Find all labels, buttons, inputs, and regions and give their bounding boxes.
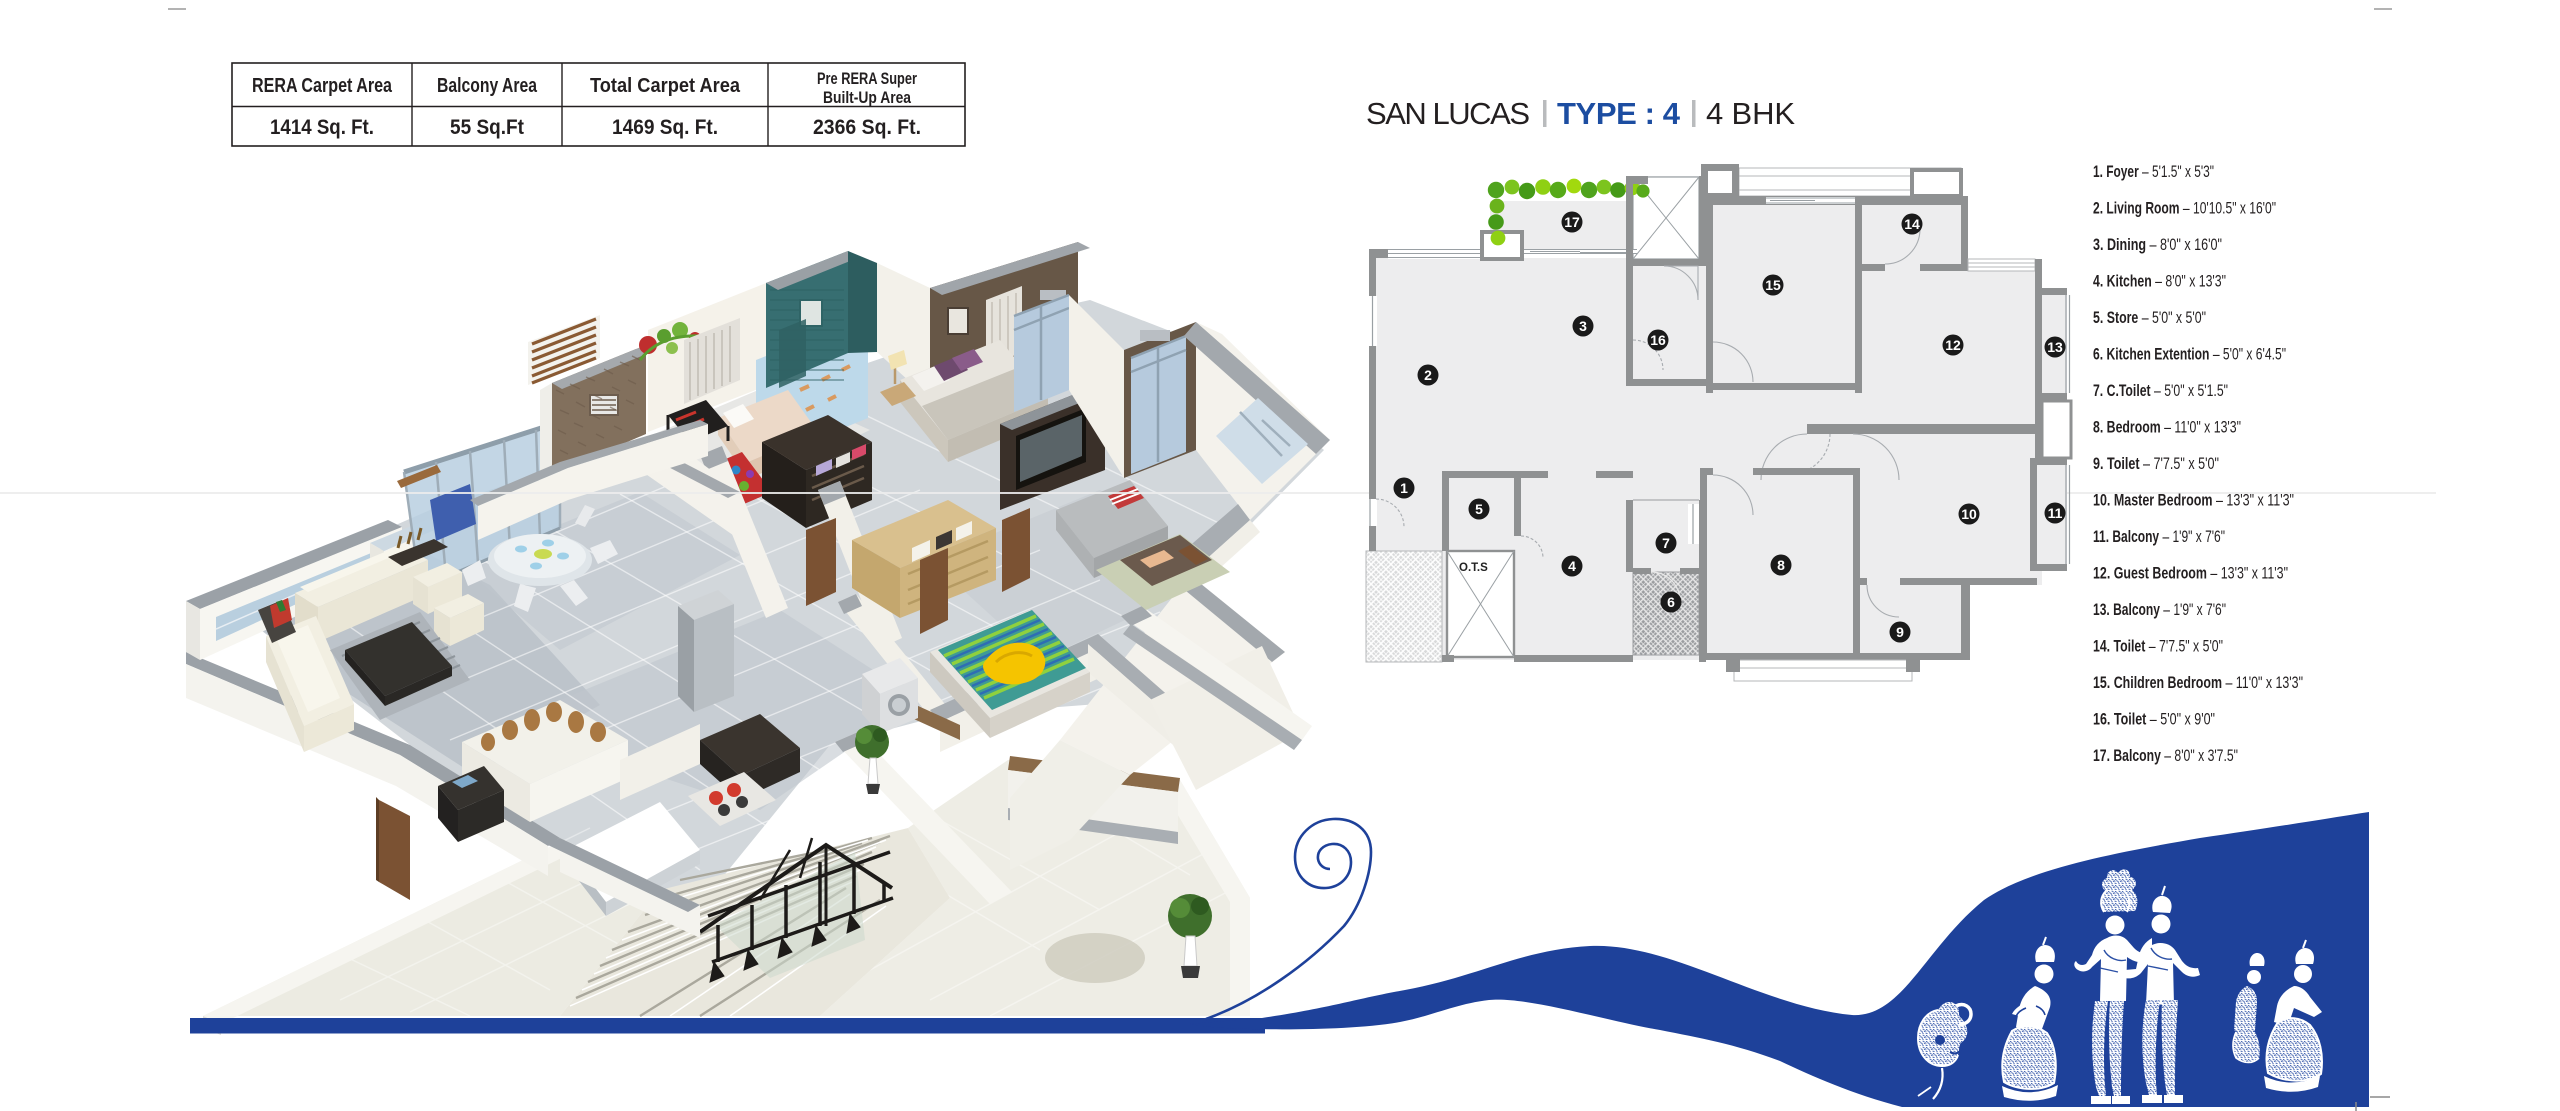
svg-text:16. Toilet – 5'0" x 9'0": 16. Toilet – 5'0" x 9'0": [2093, 711, 2215, 729]
svg-text:4: 4: [1568, 558, 1576, 574]
svg-text:7: 7: [1662, 535, 1670, 551]
svg-text:2366 Sq. Ft.: 2366 Sq. Ft.: [813, 116, 921, 139]
svg-text:1414 Sq. Ft.: 1414 Sq. Ft.: [270, 116, 374, 139]
svg-text:17: 17: [1564, 214, 1580, 230]
svg-text:3. Dining – 8'0" x 16'0": 3. Dining – 8'0" x 16'0": [2093, 236, 2222, 254]
svg-text:1. Foyer – 5'1.5" x 5'3": 1. Foyer – 5'1.5" x 5'3": [2093, 163, 2214, 181]
svg-text:Built-Up Area: Built-Up Area: [823, 89, 912, 107]
svg-text:4 BHK: 4 BHK: [1706, 96, 1795, 131]
svg-text:17. Balcony – 8'0" x 3'7.5": 17. Balcony – 8'0" x 3'7.5": [2093, 747, 2238, 765]
svg-text:16: 16: [1650, 332, 1666, 348]
svg-text:3: 3: [1579, 318, 1587, 334]
svg-text:12. Guest Bedroom – 13'3" x 11: 12. Guest Bedroom – 13'3" x 11'3": [2093, 565, 2288, 583]
svg-text:Total Carpet Area: Total Carpet Area: [590, 75, 741, 97]
svg-text:14. Toilet – 7'7.5" x 5'0": 14. Toilet – 7'7.5" x 5'0": [2093, 638, 2223, 656]
svg-text:6: 6: [1667, 594, 1675, 610]
svg-text:O.T.S: O.T.S: [1459, 562, 1488, 574]
svg-text:10. Master Bedroom – 13'3" x 1: 10. Master Bedroom – 13'3" x 11'3": [2093, 492, 2294, 510]
svg-text:55 Sq.Ft: 55 Sq.Ft: [450, 116, 524, 139]
svg-text:11. Balcony – 1'9" x 7'6": 11. Balcony – 1'9" x 7'6": [2093, 528, 2225, 546]
svg-text:4. Kitchen – 8'0" x 13'3": 4. Kitchen – 8'0" x 13'3": [2093, 273, 2226, 291]
svg-text:5. Store – 5'0" x 5'0": 5. Store – 5'0" x 5'0": [2093, 309, 2206, 327]
svg-text:9: 9: [1896, 624, 1904, 640]
svg-text:TYPE : 4: TYPE : 4: [1557, 96, 1681, 131]
svg-text:RERA Carpet Area: RERA Carpet Area: [252, 75, 393, 97]
svg-text:5: 5: [1475, 501, 1483, 517]
svg-text:15: 15: [1765, 277, 1781, 293]
svg-text:10: 10: [1961, 506, 1977, 522]
svg-text:2. Living Room – 10'10.5" x 16: 2. Living Room – 10'10.5" x 16'0": [2093, 200, 2276, 218]
svg-text:Balcony Area: Balcony Area: [437, 75, 538, 97]
svg-text:9. Toilet – 7'7.5" x 5'0": 9. Toilet – 7'7.5" x 5'0": [2093, 455, 2219, 473]
svg-text:Pre RERA Super: Pre RERA Super: [817, 70, 917, 88]
svg-text:13. Balcony – 1'9" x 7'6": 13. Balcony – 1'9" x 7'6": [2093, 601, 2226, 619]
svg-text:2: 2: [1424, 367, 1432, 383]
svg-text:1469 Sq. Ft.: 1469 Sq. Ft.: [612, 116, 718, 139]
svg-text:15. Children Bedroom – 11'0" x: 15. Children Bedroom – 11'0" x 13'3": [2093, 674, 2303, 692]
svg-text:14: 14: [1904, 216, 1920, 232]
svg-text:1: 1: [1400, 480, 1408, 496]
svg-text:SAN LUCAS: SAN LUCAS: [1366, 96, 1530, 131]
svg-text:8. Bedroom – 11'0" x 13'3": 8. Bedroom – 11'0" x 13'3": [2093, 419, 2241, 437]
svg-text:8: 8: [1777, 557, 1785, 573]
svg-text:6. Kitchen Extention – 5'0" x: 6. Kitchen Extention – 5'0" x 6'4.5": [2093, 346, 2286, 364]
svg-text:12: 12: [1945, 337, 1961, 353]
svg-text:13: 13: [2047, 339, 2063, 355]
svg-text:7. C.Toilet – 5'0" x 5'1.5": 7. C.Toilet – 5'0" x 5'1.5": [2093, 382, 2228, 400]
svg-text:11: 11: [2048, 505, 2063, 521]
